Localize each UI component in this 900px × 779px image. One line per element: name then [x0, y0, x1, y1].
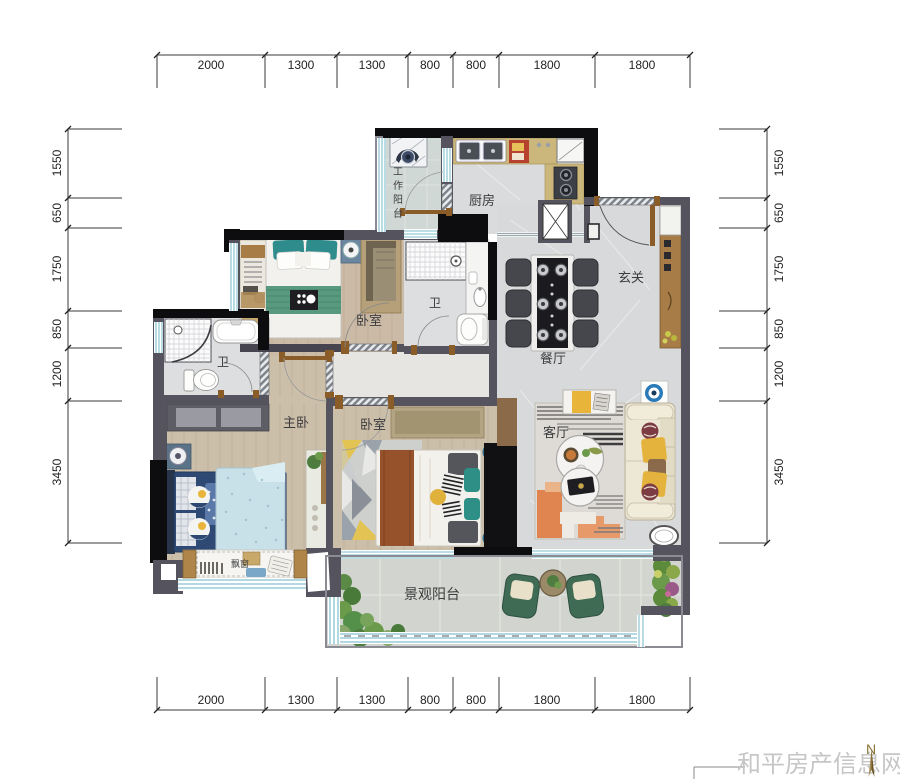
svg-text:800: 800: [466, 693, 486, 707]
svg-text:主卧: 主卧: [283, 415, 309, 430]
svg-text:800: 800: [420, 58, 440, 72]
svg-text:800: 800: [466, 58, 486, 72]
svg-text:卫: 卫: [429, 296, 441, 310]
svg-text:1800: 1800: [629, 58, 656, 72]
svg-text:作: 作: [393, 180, 403, 192]
svg-text:1750: 1750: [50, 255, 64, 282]
svg-text:1300: 1300: [359, 693, 386, 707]
svg-text:3450: 3450: [50, 458, 64, 485]
svg-text:1750: 1750: [772, 255, 786, 282]
svg-text:1800: 1800: [534, 693, 561, 707]
svg-text:餐厅: 餐厅: [540, 351, 566, 366]
svg-text:1300: 1300: [288, 58, 315, 72]
svg-text:3450: 3450: [772, 458, 786, 485]
svg-text:1550: 1550: [772, 149, 786, 176]
svg-text:1200: 1200: [50, 360, 64, 387]
svg-text:2000: 2000: [198, 693, 225, 707]
svg-text:玄关: 玄关: [618, 270, 644, 285]
svg-text:1800: 1800: [629, 693, 656, 707]
svg-text:客厅: 客厅: [543, 425, 569, 440]
svg-text:台: 台: [393, 207, 403, 220]
svg-text:1800: 1800: [534, 58, 561, 72]
svg-text:景观阳台: 景观阳台: [404, 586, 460, 602]
svg-text:1550: 1550: [50, 149, 64, 176]
svg-text:卫: 卫: [217, 355, 229, 369]
svg-text:850: 850: [772, 319, 786, 339]
svg-text:800: 800: [420, 693, 440, 707]
svg-text:2000: 2000: [198, 58, 225, 72]
svg-text:1300: 1300: [359, 58, 386, 72]
svg-text:卧室: 卧室: [356, 313, 382, 328]
svg-text:650: 650: [772, 203, 786, 223]
svg-text:1200: 1200: [772, 360, 786, 387]
svg-text:阳: 阳: [393, 194, 403, 206]
svg-text:650: 650: [50, 203, 64, 223]
svg-text:850: 850: [50, 319, 64, 339]
svg-text:卧室: 卧室: [360, 417, 386, 432]
svg-text:1300: 1300: [288, 693, 315, 707]
svg-text:厨房: 厨房: [469, 193, 495, 208]
svg-text:工: 工: [393, 167, 403, 178]
svg-text:飘窗: 飘窗: [231, 558, 249, 569]
